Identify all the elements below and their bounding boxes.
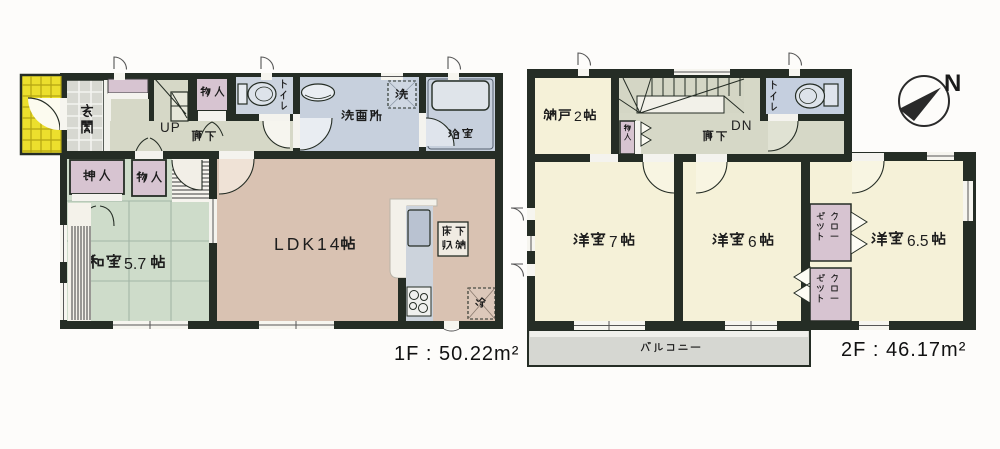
svg-text:6.5: 6.5 bbox=[907, 233, 929, 250]
svg-text:6: 6 bbox=[748, 234, 757, 251]
svg-text:1F : 50.22m²: 1F : 50.22m² bbox=[394, 343, 519, 365]
svg-text:DN: DN bbox=[731, 118, 753, 133]
svg-text:N: N bbox=[944, 70, 961, 97]
svg-text:UP: UP bbox=[160, 120, 181, 135]
svg-text:2F : 46.17m²: 2F : 46.17m² bbox=[841, 339, 966, 361]
svg-text:LDK14: LDK14 bbox=[274, 234, 343, 254]
svg-text:5.7: 5.7 bbox=[124, 256, 146, 273]
svg-text:2: 2 bbox=[574, 108, 582, 124]
svg-text:7: 7 bbox=[609, 234, 618, 251]
